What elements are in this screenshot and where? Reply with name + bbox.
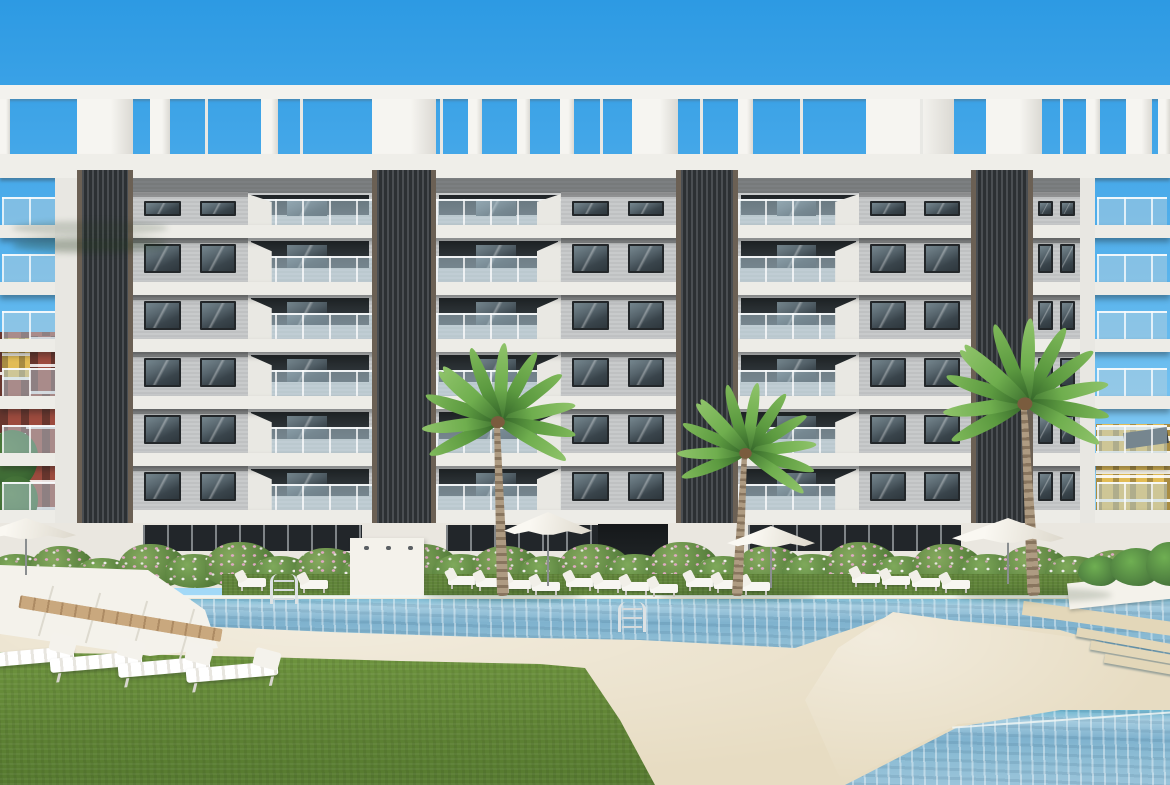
window-glass: [872, 203, 904, 214]
palm-tree: [923, 323, 1131, 603]
window-glass: [574, 203, 607, 214]
window-glass: [630, 474, 663, 499]
underslab-shadow: [1033, 295, 1080, 300]
underslab-shadow: [561, 192, 676, 197]
roof-pergola-beam: [0, 85, 1170, 99]
shower-head: [386, 546, 391, 550]
open-terrace-balustrade: [2, 254, 56, 284]
roof-pergola-pier: [560, 99, 574, 154]
underslab-shadow: [133, 192, 248, 197]
window-glass: [926, 246, 958, 271]
window-glass: [630, 246, 663, 271]
roof-pergola-pier: [150, 99, 170, 154]
open-terrace-balustrade: [1097, 254, 1167, 284]
roof-pergola-pier: [372, 99, 436, 154]
window-glass: [1062, 246, 1073, 271]
window-glass: [926, 303, 958, 328]
window-glass: [630, 360, 663, 385]
window-glass: [630, 303, 663, 328]
roof-pergola-pier: [986, 99, 1042, 154]
underslab-shadow: [859, 295, 971, 300]
roof-railing-post: [1060, 99, 1063, 154]
window-glass: [574, 246, 607, 271]
window-glass: [872, 360, 904, 385]
underslab-shadow: [133, 409, 248, 414]
roof-overhang-shadow: [66, 178, 1080, 193]
window-glass: [1062, 303, 1073, 328]
roof-pergola-pier: [866, 99, 954, 154]
window-glass: [202, 474, 235, 499]
underslab-shadow: [859, 238, 971, 243]
parasol-pole: [770, 544, 772, 588]
window-glass: [1040, 246, 1051, 271]
window-glass: [202, 246, 235, 271]
window-glass: [1040, 303, 1051, 328]
roof-railing-post: [700, 99, 703, 154]
window-glass: [202, 417, 235, 442]
roof-pergola-pier: [77, 99, 133, 154]
open-terrace-balustrade: [2, 425, 56, 455]
pool-ladder: [618, 602, 646, 632]
window-glass: [146, 417, 179, 442]
parasol-pole: [547, 532, 549, 586]
underslab-shadow: [561, 295, 676, 300]
window-glass: [630, 417, 663, 442]
underslab-shadow: [561, 238, 676, 243]
open-terrace-balustrade: [2, 311, 56, 341]
roof-railing-post: [600, 99, 603, 154]
window-glass: [202, 203, 235, 214]
window-glass: [574, 303, 607, 328]
window-glass: [146, 303, 179, 328]
window-glass: [202, 360, 235, 385]
window-glass: [1062, 203, 1073, 214]
underslab-shadow: [1033, 238, 1080, 243]
palm-tree: [656, 386, 829, 602]
palm-shadow: [12, 221, 168, 235]
palm-trunk: [491, 424, 509, 596]
window-glass: [872, 417, 904, 442]
window-glass: [146, 474, 179, 499]
roof-railing-post: [920, 99, 923, 154]
palm-trunk: [732, 455, 750, 597]
roof-railing-post: [205, 99, 208, 154]
open-terrace-balustrade: [2, 482, 56, 512]
window-glass: [146, 360, 179, 385]
window-glass: [202, 303, 235, 328]
roof-pergola-pier: [0, 99, 10, 154]
sun-lounger: [622, 582, 650, 591]
roof-pergola-pier: [632, 99, 678, 154]
roof-pergola-pier: [1158, 99, 1170, 154]
roof-pergola-pier: [261, 99, 278, 154]
window-glass: [1040, 203, 1051, 214]
roof-railing-post: [440, 99, 443, 154]
underslab-shadow: [859, 192, 971, 197]
roof-pergola-pier: [1086, 99, 1100, 154]
roof-pergola-pier: [468, 99, 482, 154]
roof-pergola-pier: [517, 99, 530, 154]
window-glass: [146, 203, 179, 214]
shower-head: [364, 546, 369, 550]
open-terrace-balustrade: [1097, 197, 1167, 227]
palm-tree: [404, 349, 592, 601]
underslab-shadow: [133, 466, 248, 471]
underslab-shadow: [133, 352, 248, 357]
underslab-shadow: [1033, 192, 1080, 197]
pool-ladder: [270, 574, 298, 604]
roof-railing-post: [300, 99, 303, 154]
sun-lounger: [882, 576, 910, 585]
parasol-pole: [1007, 540, 1009, 584]
sun-lounger: [238, 578, 266, 587]
parasol-pole: [25, 536, 27, 575]
window-glass: [926, 203, 958, 214]
sun-lounger: [594, 580, 622, 589]
roof-pergola-pier: [738, 99, 753, 154]
window-glass: [872, 246, 904, 271]
window-glass: [872, 474, 904, 499]
palm-trunk: [1017, 406, 1040, 596]
roof-pergola-pier: [1126, 99, 1152, 154]
palm-shadow: [12, 240, 168, 254]
scene-apartment-complex-render: [0, 0, 1170, 785]
roof-railing-post: [800, 99, 803, 154]
sun-lounger: [852, 574, 880, 583]
window-glass: [630, 203, 663, 214]
sun-lounger: [300, 580, 328, 589]
underslab-shadow: [133, 295, 248, 300]
open-terrace-balustrade: [2, 368, 56, 398]
window-glass: [872, 303, 904, 328]
